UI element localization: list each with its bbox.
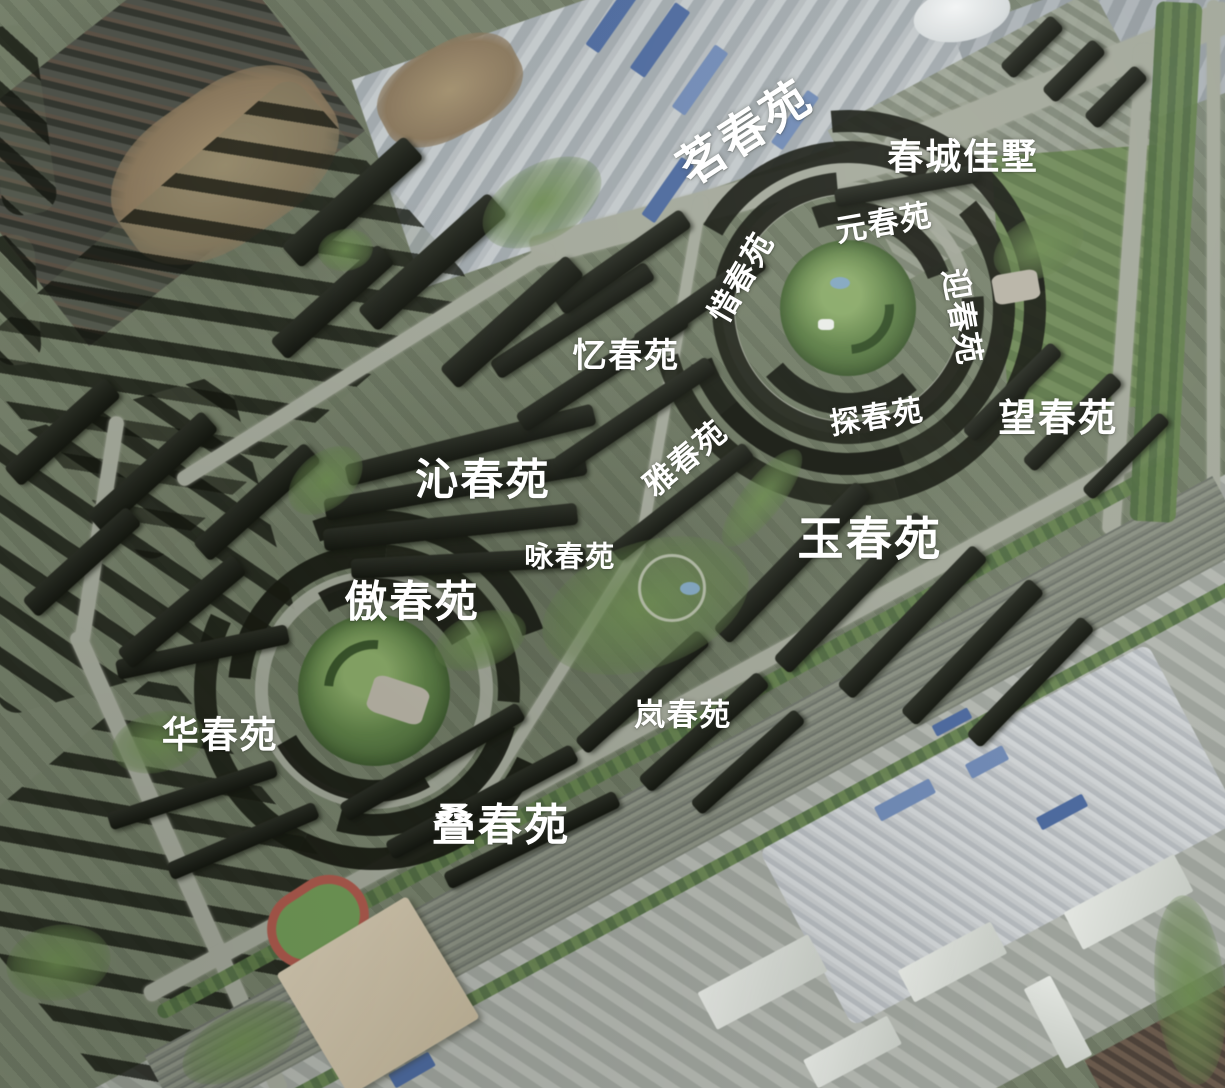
district-label: 春城佳墅: [887, 140, 1038, 176]
district-label: 忆春苑: [572, 339, 679, 373]
district-label: 咏春苑: [524, 543, 615, 572]
district-label: 探春苑: [828, 396, 926, 440]
district-label: 玉春苑: [798, 516, 943, 562]
district-label: 叠春苑: [432, 804, 571, 848]
district-label: 惜春苑: [704, 228, 780, 328]
district-label: 雅春苑: [639, 416, 734, 503]
district-label: 傲春苑: [344, 582, 479, 625]
satellite-map: 茗春苑春城佳墅元春苑惜春苑迎春苑忆春苑探春苑望春苑雅春苑沁春苑玉春苑咏春苑傲春苑…: [0, 0, 1225, 1088]
district-label: 元春苑: [833, 200, 935, 247]
district-label: 迎春苑: [937, 266, 984, 368]
district-label: 望春苑: [998, 399, 1118, 437]
district-label: 沁春苑: [415, 460, 550, 503]
district-label: 茗春苑: [670, 73, 820, 193]
district-label: 岚春苑: [634, 701, 732, 732]
district-label: 华春苑: [162, 717, 279, 754]
map-labels-layer: 茗春苑春城佳墅元春苑惜春苑迎春苑忆春苑探春苑望春苑雅春苑沁春苑玉春苑咏春苑傲春苑…: [0, 0, 1225, 1088]
